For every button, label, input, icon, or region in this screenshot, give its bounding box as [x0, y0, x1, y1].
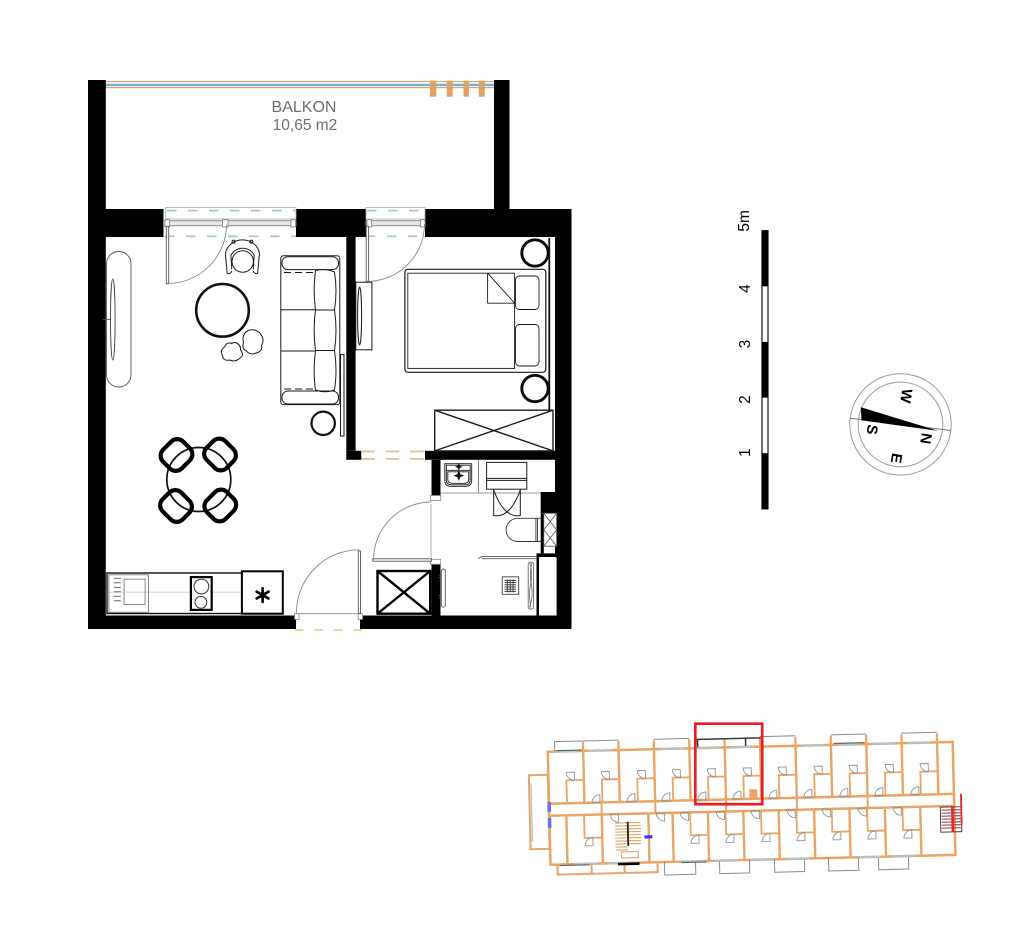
- svg-text:2: 2: [737, 395, 754, 404]
- svg-text:1: 1: [737, 448, 754, 457]
- svg-text:4: 4: [737, 284, 754, 293]
- svg-text:10,65 m2: 10,65 m2: [273, 117, 338, 134]
- svg-text:5m: 5m: [736, 210, 753, 232]
- svg-text:3: 3: [737, 340, 754, 349]
- svg-text:BALKON: BALKON: [272, 99, 337, 116]
